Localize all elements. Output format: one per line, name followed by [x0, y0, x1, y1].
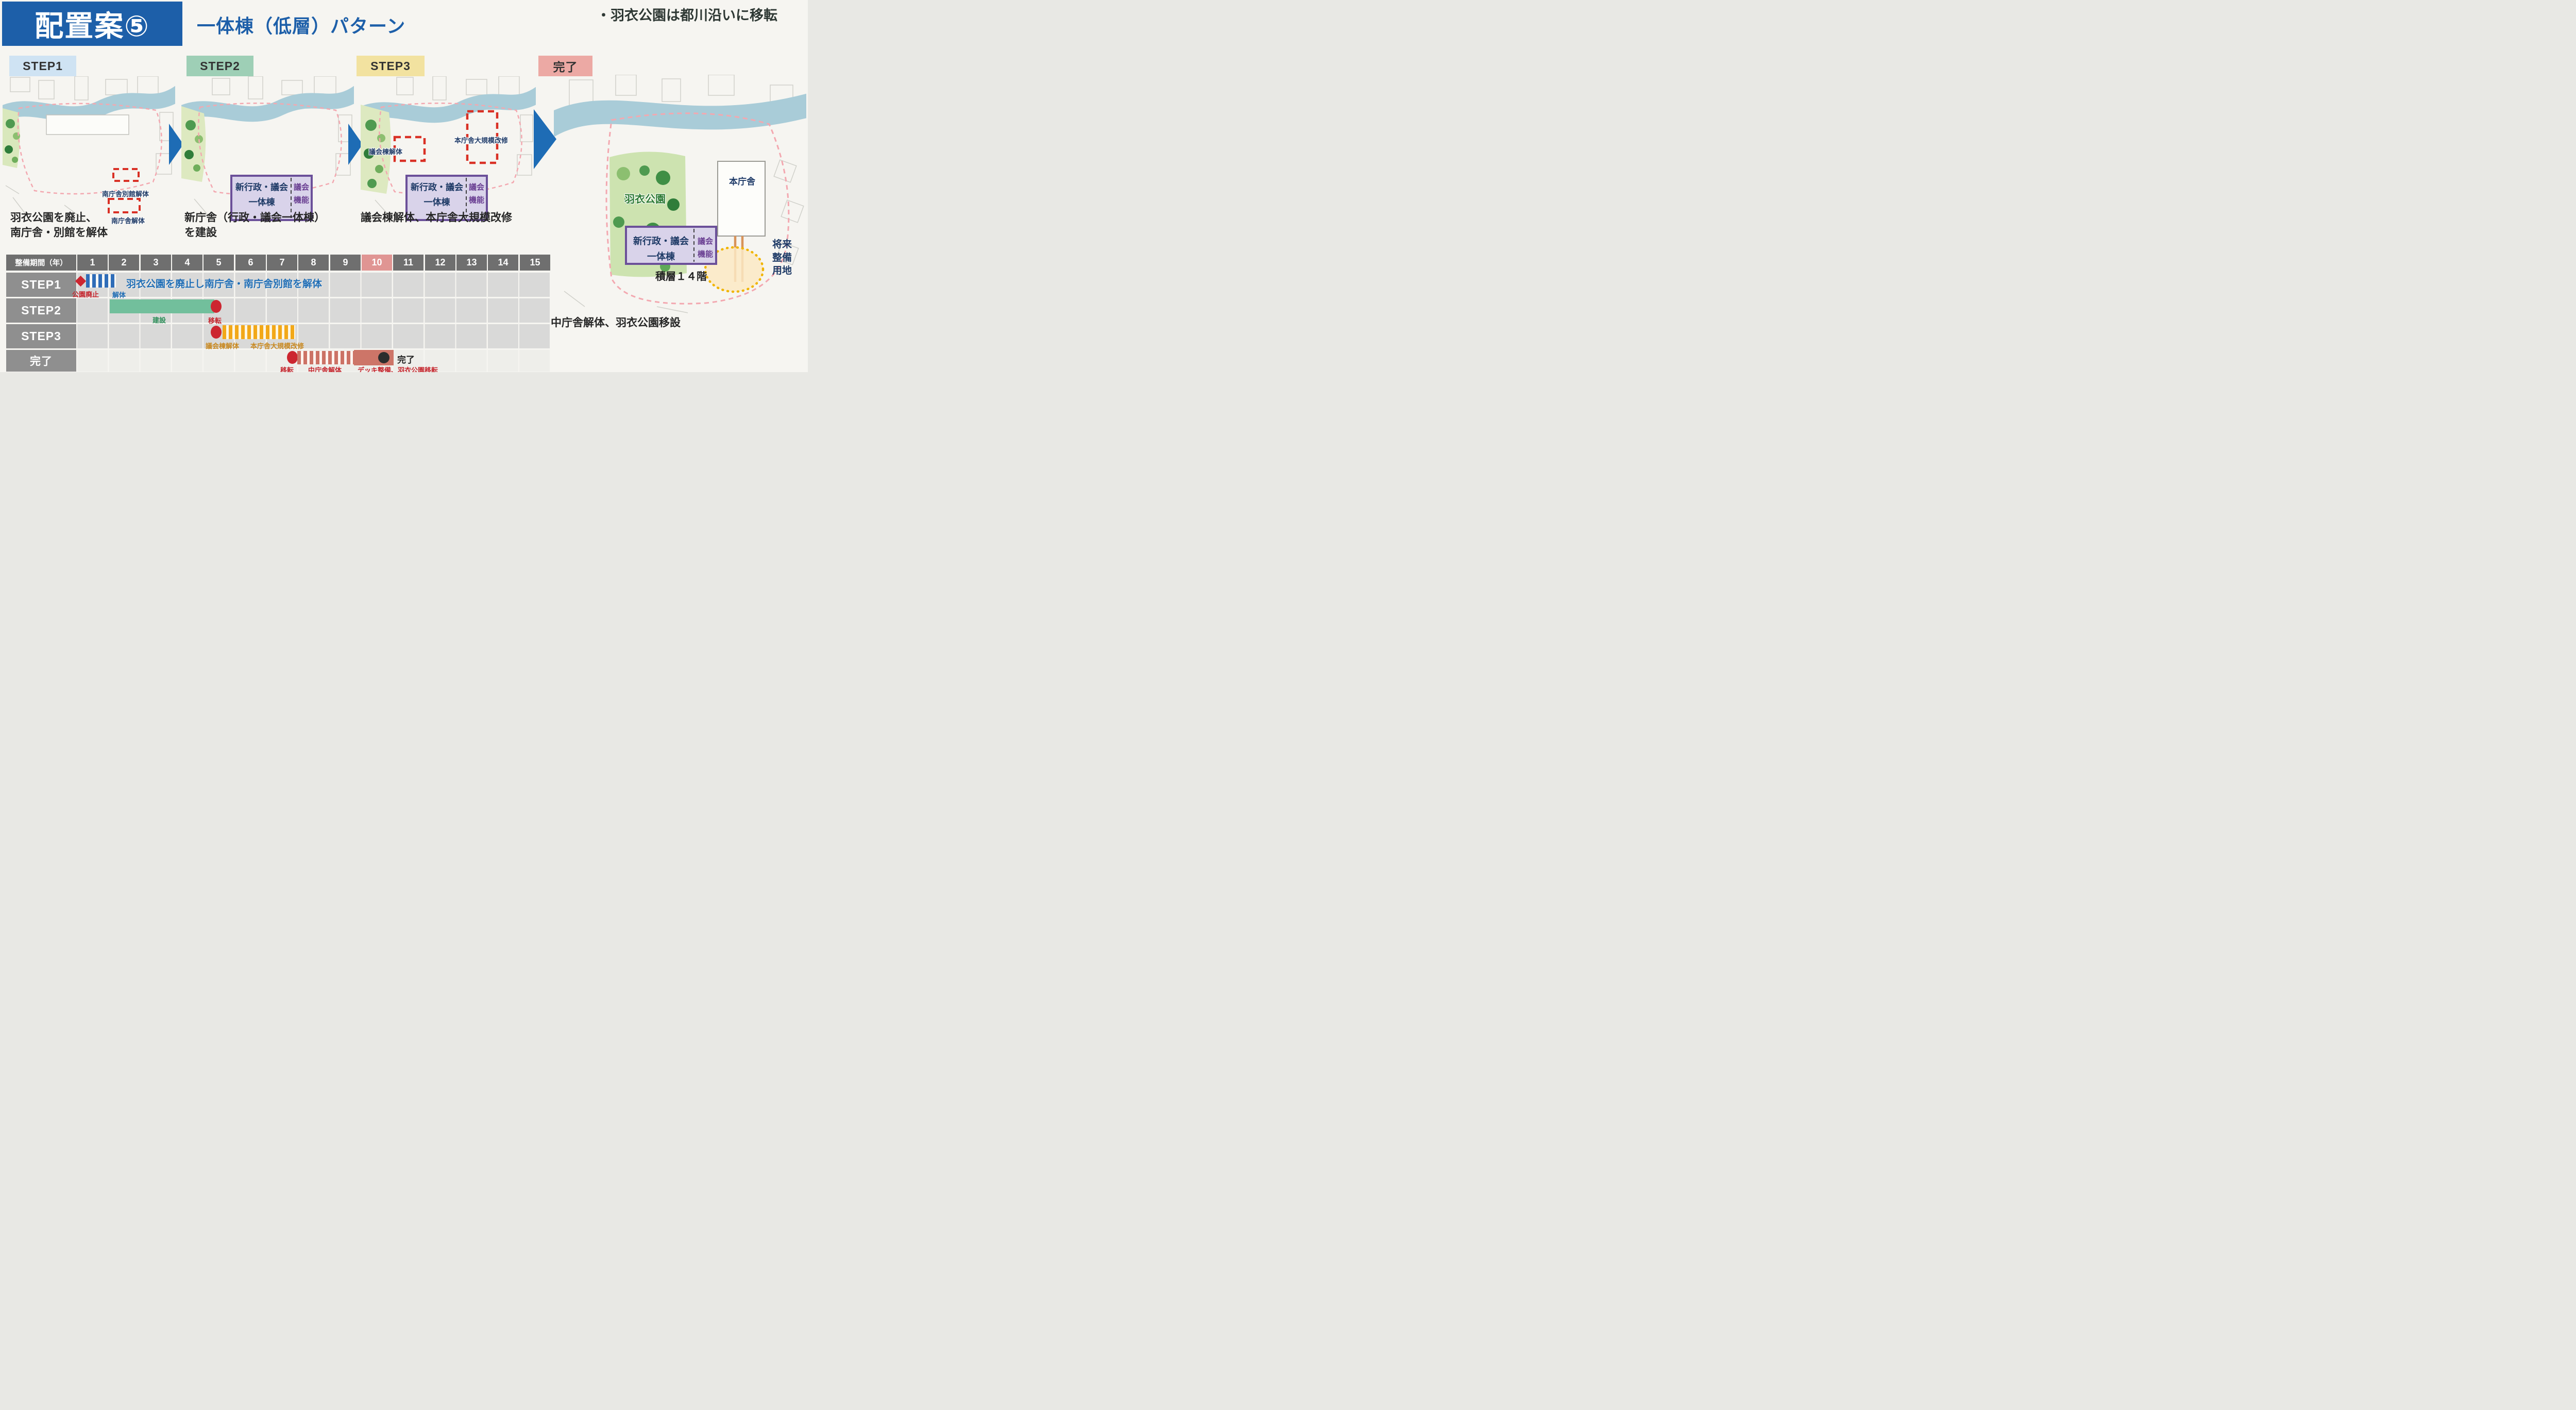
- gantt-year-5: 5: [204, 255, 234, 271]
- step2-move-milestone: [211, 300, 222, 313]
- step3-start-milestone: [211, 326, 222, 339]
- page-subtitle: 一体棟（低層）パターン: [197, 11, 405, 38]
- hagoromo-park-label: 羽衣公園: [624, 191, 666, 206]
- completion-milestone: [378, 352, 389, 363]
- gantt-year-2: 2: [109, 255, 139, 271]
- gantt-row-label-step2: STEP2: [6, 298, 76, 323]
- main-hall-renovation-gantt-label: 本庁舎大規模改修: [250, 341, 304, 350]
- step3-chip: STEP3: [357, 56, 425, 76]
- gantt-year-13: 13: [456, 255, 487, 271]
- south-hall-demolition-outline: [109, 199, 140, 212]
- page-title-badge: 配置案⑤: [2, 2, 182, 46]
- step2-caption: 新庁舎（行政・議会一体棟） を建設: [184, 210, 325, 241]
- main-hall-renovation-label: 本庁舎大規模改修: [454, 135, 508, 145]
- completion-label: 完了: [397, 352, 415, 365]
- gantt-year-11: 11: [393, 255, 423, 271]
- council-function-label: 議会 機能: [467, 181, 486, 205]
- construction-label: 建設: [152, 315, 166, 325]
- step3-caption: 議会棟解体、本庁舎大規模改修: [361, 210, 512, 225]
- council-function-label: 議会 機能: [695, 236, 716, 259]
- new-building-label-line1: 新行政・議会: [235, 180, 288, 193]
- new-building-label: 新行政・議会 一体棟: [408, 180, 466, 208]
- gantt-year-10-highlighted: 10: [362, 255, 392, 271]
- new-building-label-line2: 一体棟: [249, 195, 275, 208]
- gantt-row-label-done: 完了: [6, 350, 76, 372]
- gantt-row-label-step1: STEP1: [6, 273, 76, 297]
- gantt-period-header: 整備期間（年）: [6, 255, 76, 271]
- stacked-floors-label: 積層１４階: [655, 268, 707, 283]
- relocation-note: ・羽衣公園は都川沿いに移転: [597, 4, 777, 24]
- step2-chip: STEP2: [187, 56, 253, 76]
- deck-and-park-relocation-label: デッキ整備、羽衣公園移転: [358, 365, 438, 372]
- final-move-label: 移転: [280, 365, 294, 372]
- step1-annotation: 羽衣公園を廃止し南庁舎・南庁舎別館を解体: [126, 276, 322, 290]
- gantt-row-label-step3: STEP3: [6, 324, 76, 348]
- park-closure-label: 公園廃止: [72, 289, 99, 299]
- council-function-label: 議会 機能: [292, 181, 311, 205]
- final-move-milestone: [287, 351, 298, 364]
- gantt-year-12: 12: [425, 255, 455, 271]
- final-caption: 中庁舎解体、羽衣公園移設: [551, 315, 681, 330]
- new-building-label: 新行政・議会 一体棟: [630, 234, 692, 263]
- step2-construction-bar: [110, 299, 214, 313]
- step1-caption: 羽衣公園を廃止、 南庁舎・別館を解体: [10, 210, 108, 241]
- south-hall-demolition-label: 南庁舎解体: [111, 215, 145, 225]
- gantt-year-4: 4: [172, 255, 202, 271]
- step1-demolition-bar: [86, 274, 116, 288]
- gantt-year-9: 9: [330, 255, 361, 271]
- gantt-year-7: 7: [267, 255, 297, 271]
- gantt-year-8: 8: [298, 255, 329, 271]
- gantt-year-6: 6: [235, 255, 266, 271]
- existing-building-outline: [46, 115, 129, 135]
- new-building-label: 新行政・議会 一体棟: [233, 180, 291, 208]
- river: [554, 105, 806, 126]
- park: [181, 106, 206, 182]
- middle-hall-demolition-bar: [297, 351, 354, 364]
- main-hall-building: [718, 161, 765, 236]
- river: [181, 92, 354, 116]
- step3-renovation-bar: [223, 325, 295, 339]
- step1-map: [3, 76, 175, 228]
- gantt-year-1: 1: [77, 255, 108, 271]
- main-hall-label: 本庁舎: [729, 174, 755, 187]
- step1-demolition-label: 解体: [112, 290, 126, 299]
- middle-hall-demolition-label: 中庁舎解体: [308, 365, 342, 372]
- gantt-grid-step3: [77, 324, 551, 348]
- future-site-label: 将来 整備 用地: [768, 238, 796, 278]
- annex-demolition-outline: [113, 169, 139, 181]
- gantt-year-15: 15: [520, 255, 550, 271]
- gantt-year-3: 3: [141, 255, 171, 271]
- done-chip: 完了: [538, 56, 592, 76]
- council-demolition-label: 議会棟解体: [369, 146, 402, 156]
- step1-chip: STEP1: [9, 56, 76, 76]
- annex-demolition-label: 南庁舎別館解体: [102, 189, 149, 198]
- council-demolition-gantt-label: 議会棟解体: [206, 341, 239, 350]
- final-step-arrow-icon: [534, 109, 556, 169]
- gantt-year-14: 14: [488, 255, 518, 271]
- layout-plan-5-page: 配置案⑤ 一体棟（低層）パターン ・羽衣公園は都川沿いに移転 STEP1 STE…: [0, 0, 808, 372]
- step2-move-label: 移転: [208, 315, 222, 325]
